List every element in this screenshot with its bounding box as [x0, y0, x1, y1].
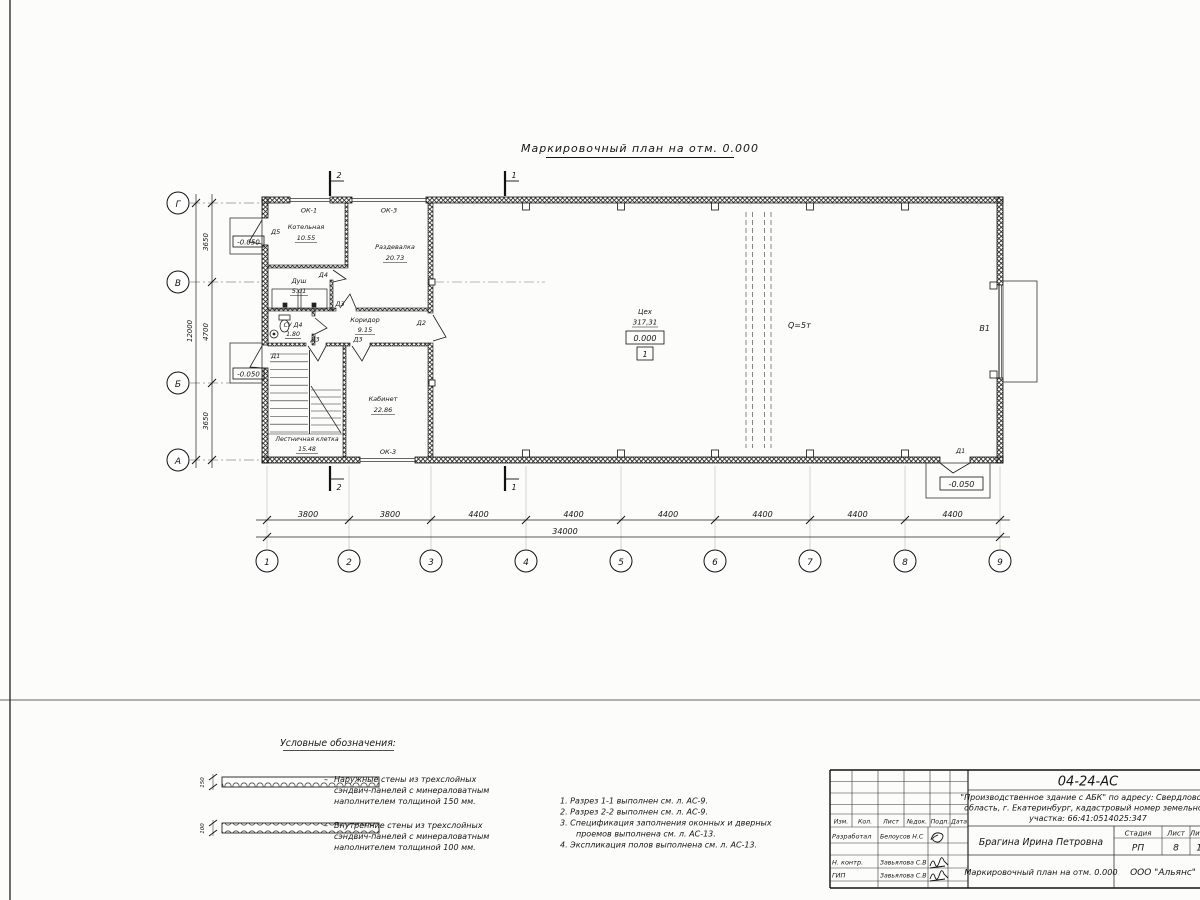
tb-role-nkontr: Н. контр. [832, 859, 863, 867]
section-label-1-top: 1 [511, 171, 516, 180]
note-3-cont: проемов выполнена см. л. АС-13. [576, 830, 716, 839]
door-label-d5: Д5 [270, 228, 280, 236]
window-label-ok1: ОК-1 [301, 207, 317, 215]
section-label-1-bottom: 1 [511, 483, 516, 492]
legend-item-2-line-3: наполнителем толщиной 100 мм. [334, 843, 476, 852]
tb-name-zavyalova-2: Завьялова С.В [880, 873, 926, 880]
notes: 1. Разрез 1-1 выполнен см. л. АС-9. 2. Р… [560, 797, 772, 850]
dim-8-9: 4400 [942, 510, 962, 519]
note-1: 1. Разрез 1-1 выполнен см. л. АС-9. [560, 797, 708, 806]
room-razdevalka-name: Раздевалка [375, 243, 415, 251]
level-mark-top: -0.050 [237, 239, 260, 247]
tb-project-line-1: "Производственное здание с АБК" по адрес… [960, 793, 1200, 802]
legend-thickness-150: 150 [200, 777, 206, 788]
legend-item-2-line-2: сэндвич-панелей с минераловатным [334, 832, 489, 841]
tb-project-line-2: область, г. Екатеринбург, кадастровый но… [964, 804, 1200, 813]
dim-1-2: 3800 [298, 510, 318, 519]
room-kotelnaya-name: Котельная [288, 223, 325, 231]
crane-label: Q=5т [788, 321, 811, 330]
legend-title: Условные обозначения: [280, 738, 396, 749]
axis-a: А [174, 457, 181, 467]
crane-lines [746, 212, 771, 448]
dim-2-3: 3800 [380, 510, 400, 519]
axis-7: 7 [807, 558, 813, 568]
signature-razrabotal [931, 833, 943, 842]
tb-name-zavyalova-1: Завьялова С.В [880, 860, 926, 867]
tb-col-podp: Подп. [931, 819, 950, 826]
legend-dash-2: – [324, 821, 328, 830]
room-kabinet-name: Кабинет [369, 395, 398, 403]
dimension-lines-bottom: 3800 3800 4400 4400 4400 4400 4400 4400 … [256, 466, 1010, 549]
legend-thickness-100: 100 [200, 823, 206, 834]
tb-col-kol: Кол. [858, 819, 872, 826]
note-3: 3. Спецификация заполнения оконных и две… [560, 819, 772, 828]
tb-sheet-label: Лист [1166, 830, 1186, 838]
room-kabinet-area: 22.86 [374, 406, 393, 414]
door-label-d4: Д4 [318, 271, 328, 279]
room-lestnichnaya-area: 15.48 [298, 446, 316, 453]
columns [429, 203, 997, 457]
room-dush-name: Душ [291, 277, 307, 285]
axis-1: 1 [264, 558, 270, 568]
dim-6-7: 4400 [752, 510, 772, 519]
dimension-lines-left: 3650 4700 3650 12000 [186, 194, 261, 468]
dim-b-a: 3650 [202, 412, 210, 430]
tb-name-belousov: Белоусов Н.С [880, 834, 924, 841]
door-label-d2: Д2 [416, 319, 426, 327]
tb-role-razrabotal: Разработал [832, 833, 871, 841]
legend-dash-1: – [324, 775, 328, 784]
door-label-d1-left: Д1 [270, 352, 280, 360]
dim-4-5: 4400 [563, 510, 583, 519]
room-labels: Котельная 10.55 Раздевалка 20.73 Душ 5.0… [274, 223, 664, 454]
room-su-name: СУ Д4 [284, 322, 303, 329]
axis-2: 2 [346, 558, 352, 568]
door-label-d1-bottom: Д1 [955, 447, 965, 455]
room-koridor-area: 9.15 [358, 326, 372, 334]
room-lestnichnaya-name: Лестничная клетка [274, 436, 339, 443]
dim-v-b: 4700 [202, 323, 210, 341]
axis-6: 6 [712, 558, 718, 568]
plan-title: Маркировочный план на отм. 0.000 [521, 142, 759, 155]
room-su-area: 1.80 [286, 331, 300, 338]
axis-4: 4 [523, 558, 529, 568]
axis-b: Б [175, 380, 181, 390]
room-dush-area: 5.01 [292, 287, 306, 295]
tb-col-ndok: №док. [906, 819, 927, 826]
room-tseh-floor-type: 1 [642, 350, 647, 359]
level-mark-mid: -0.050 [237, 371, 260, 379]
dim-7-8: 4400 [847, 510, 867, 519]
door-label-d3-a: Д3 [334, 300, 344, 308]
section-label-2-bottom: 2 [336, 483, 341, 492]
tb-stage-label: Стадия [1125, 830, 1152, 838]
tb-col-data: Дата [950, 819, 967, 826]
room-koridor-name: Коридор [350, 316, 380, 324]
tb-role-gip: ГИП [832, 872, 845, 880]
tb-sheets-value: 13 [1196, 844, 1200, 854]
tb-company: ООО "Альянс" [1130, 868, 1196, 878]
floor-plan-drawing: Маркировочный план на отм. 0.000 ОК-1 ОК… [0, 0, 1200, 900]
room-tseh-area: 317,31 [633, 319, 658, 327]
signature-gip [930, 871, 948, 881]
tb-doc-number: 04-24-АС [1058, 775, 1119, 790]
door-label-d3-b: Д3 [309, 336, 319, 344]
dim-5-6: 4400 [658, 510, 678, 519]
legend-item-1-line-3: наполнителем толщиной 150 мм. [334, 797, 476, 806]
sink [270, 330, 278, 338]
gate-v1 [999, 281, 1037, 382]
axis-bubbles-bottom: 1 2 3 4 5 6 7 8 9 [256, 550, 1011, 572]
interior-walls [268, 203, 433, 457]
window-label-ok3-top: ОК-3 [381, 207, 397, 215]
door-leaves [249, 220, 970, 473]
tb-project-line-3: участка: 66:41:0514025:347 [1028, 814, 1148, 823]
room-tseh-level: 0.000 [634, 334, 657, 343]
tb-sheets-label: Листов [1189, 830, 1200, 838]
dim-g-v: 3650 [202, 233, 210, 251]
signature-nkontr [930, 858, 948, 868]
dim-total: 34000 [552, 527, 577, 536]
axis-5: 5 [618, 558, 624, 568]
room-razdevalka-area: 20.73 [386, 254, 405, 262]
axis-v: В [175, 279, 181, 289]
note-2: 2. Разрез 2-2 выполнен см. л. АС-9. [560, 808, 708, 817]
room-tseh-name: Цех [638, 308, 653, 316]
title-block: Изм. Кол. Лист №док. Подп. Дата Разработ… [830, 770, 1200, 888]
tb-col-izm: Изм. [834, 819, 849, 826]
dim-3-4: 4400 [468, 510, 488, 519]
window-label-ok3-bottom: ОК-3 [380, 448, 396, 456]
drawing-sheet: Маркировочный план на отм. 0.000 ОК-1 ОК… [0, 0, 1200, 900]
axis-3: 3 [428, 558, 434, 568]
dim-left-total: 12000 [186, 319, 194, 342]
legend-item-1-line-1: Наружные стены из трехслойных [334, 775, 477, 784]
legend-item-1-line-2: сэндвич-панелей с минераловатным [334, 786, 489, 795]
tb-approver: Брагина Ирина Петровна [979, 837, 1104, 848]
stairs [268, 350, 343, 434]
legend: Условные обозначения: 150 – Наружные сте… [200, 738, 489, 852]
level-mark-bottom: -0.050 [949, 480, 975, 489]
tb-sheet-value: 8 [1173, 844, 1179, 854]
exterior-walls [262, 197, 1003, 463]
axis-9: 9 [997, 558, 1003, 568]
axis-8: 8 [902, 558, 908, 568]
legend-item-2-line-1: Внутренние стены из трехслойных [334, 821, 483, 830]
tb-sheet-title: Маркировочный план на отм. 0.000 [964, 867, 1117, 877]
tb-stage-value: РП [1132, 844, 1144, 854]
room-kotelnaya-area: 10.55 [297, 234, 316, 242]
door-label-d3-c: Д3 [352, 336, 362, 344]
gate-label-v1: В1 [979, 324, 990, 333]
signatures [930, 833, 948, 881]
tb-col-list: Лист [882, 819, 899, 826]
section-label-2-top: 2 [336, 171, 341, 180]
note-4: 4. Экспликация полов выполнена см. л. АС… [560, 841, 757, 850]
